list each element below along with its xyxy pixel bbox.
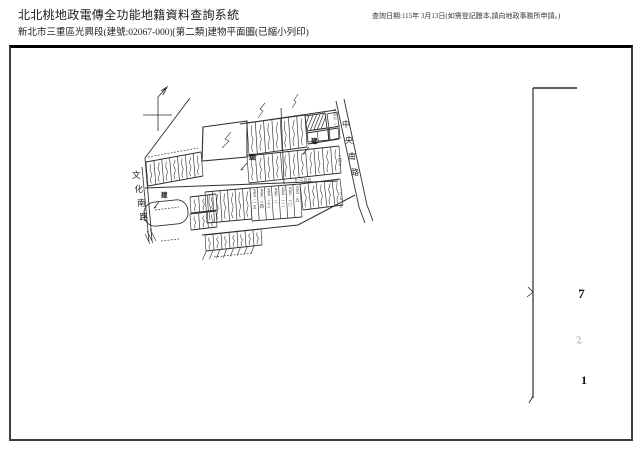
plan-sheet-frame bbox=[9, 45, 633, 441]
query-result-page: 北北桃地政電傳全功能地籍資料查詢系統 新北市三重區光興段(建號:02067-00… bbox=[0, 0, 640, 452]
document-subtitle: 新北市三重區光興段(建號:02067-000)[第二類]建物平面圖(已縮小列印) bbox=[18, 24, 309, 38]
system-title: 北北桃地政電傳全功能地籍資料查詢系統 bbox=[18, 6, 239, 23]
query-date-note: 查詢日期:115年 3月13日(如需登記謄本,請向地政事務所申請。) bbox=[372, 11, 560, 21]
